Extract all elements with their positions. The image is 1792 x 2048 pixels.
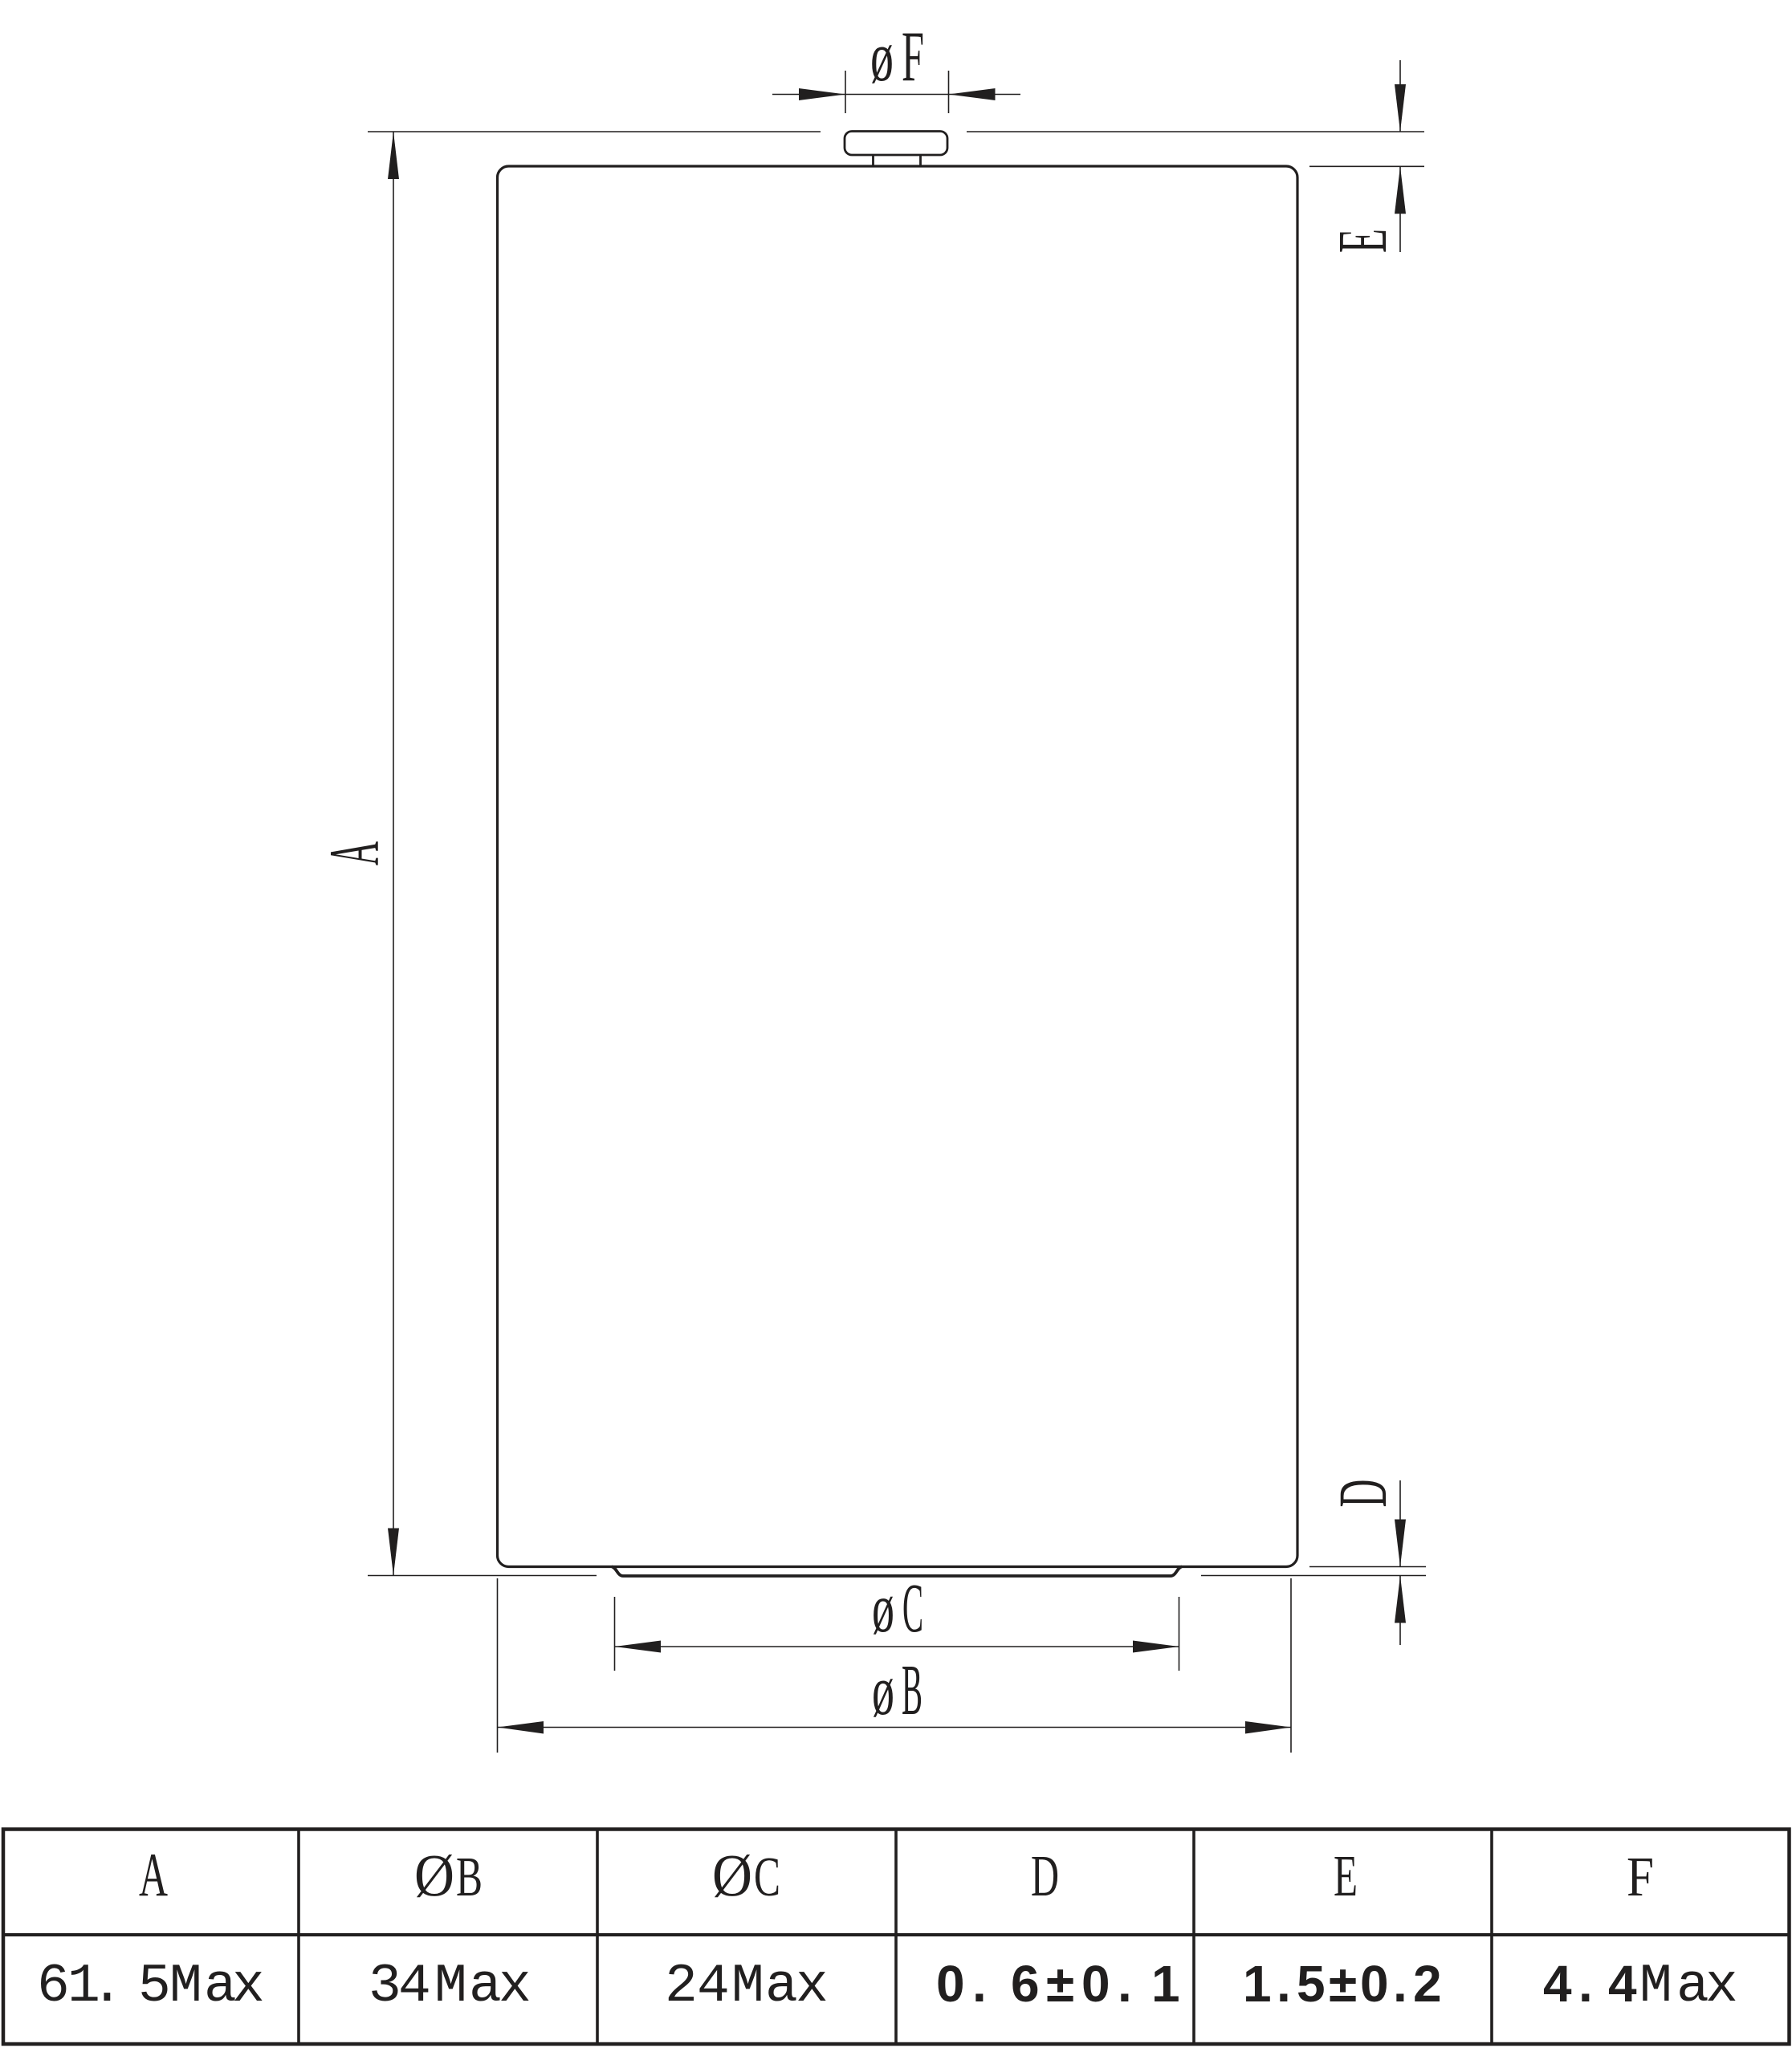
svg-text:Ø: Ø [414, 1842, 454, 1909]
svg-text:ø: ø [870, 18, 894, 96]
svg-text:F: F [902, 18, 924, 96]
svg-text:Ø: Ø [712, 1842, 752, 1909]
svg-text:C: C [754, 1846, 780, 1908]
svg-text:C: C [902, 1569, 923, 1647]
svg-text:Max: Max [1639, 1956, 1738, 2017]
svg-text:4. 4: 4. 4 [1543, 1955, 1637, 2013]
svg-text:D: D [1324, 1480, 1401, 1508]
svg-text:0. 6±0. 1: 0. 6±0. 1 [936, 1955, 1180, 2013]
svg-text:D: D [1031, 1843, 1059, 1908]
svg-text:ø: ø [872, 1652, 894, 1730]
svg-text:A: A [139, 1840, 168, 1909]
svg-text:61. 5Max: 61. 5Max [37, 1956, 265, 2017]
svg-text:E: E [1323, 229, 1401, 253]
svg-text:34Max: 34Max [369, 1956, 531, 2017]
svg-text:24Max: 24Max [665, 1956, 829, 2017]
svg-text:B: B [902, 1651, 922, 1730]
svg-text:E: E [1334, 1843, 1358, 1908]
svg-text:1.5±0.2: 1.5±0.2 [1243, 1955, 1442, 2013]
svg-text:F: F [1627, 1846, 1654, 1908]
svg-text:ø: ø [872, 1569, 894, 1647]
svg-text:B: B [456, 1846, 483, 1908]
svg-text:A: A [316, 841, 394, 865]
